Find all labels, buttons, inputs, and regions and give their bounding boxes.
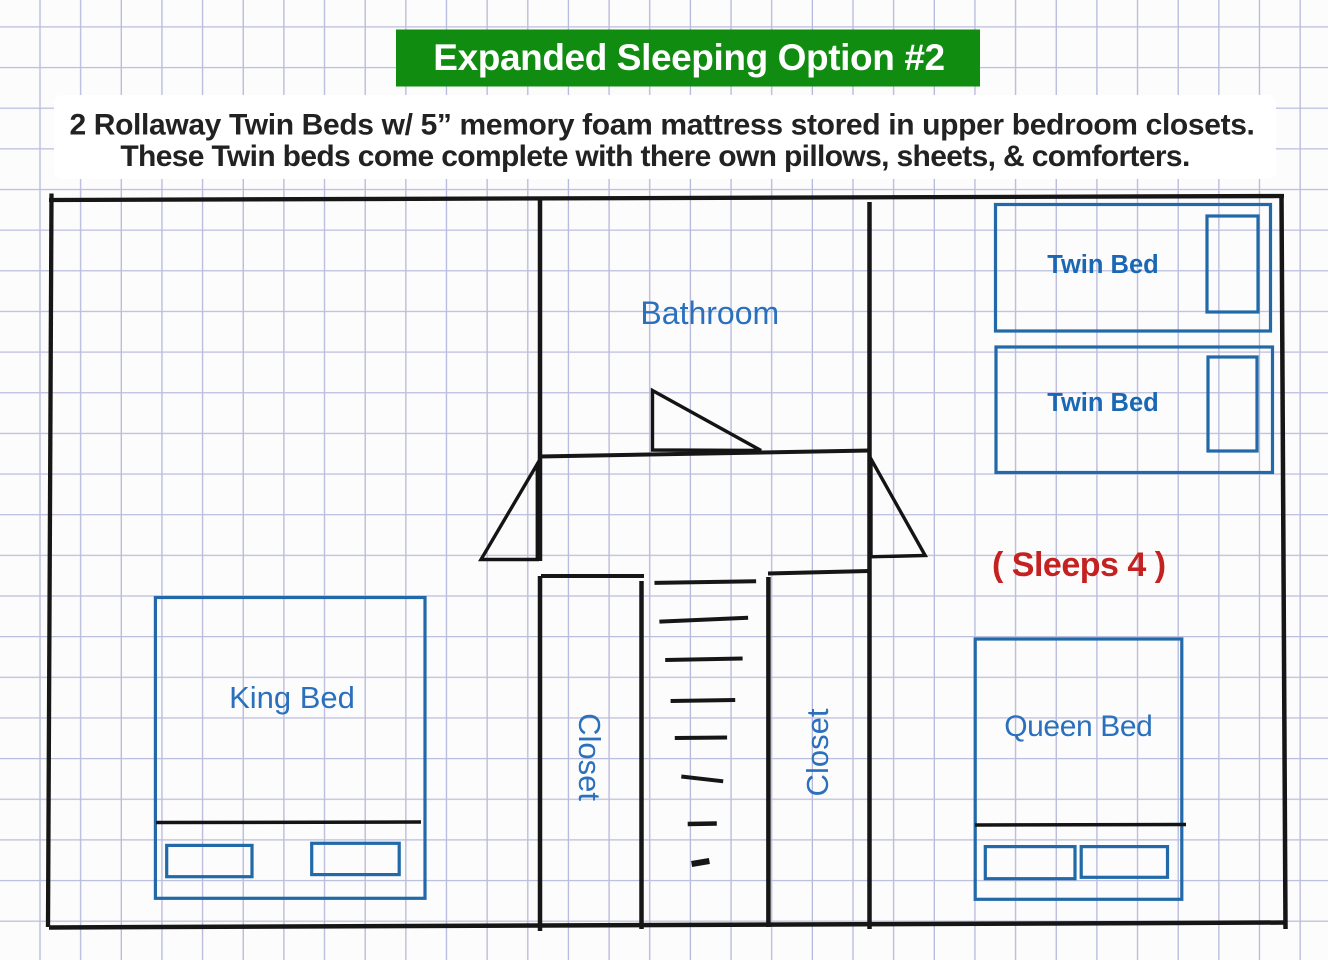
svg-text:Twin Bed: Twin Bed <box>1047 251 1158 279</box>
svg-text:2 Rollaway Twin Beds w/ 5” mem: 2 Rollaway Twin Beds w/ 5” memory foam m… <box>69 109 1254 142</box>
svg-text:King Bed: King Bed <box>229 680 355 715</box>
svg-text:Closet: Closet <box>572 713 607 801</box>
svg-text:Closet: Closet <box>800 708 835 796</box>
svg-text:Twin Bed: Twin Bed <box>1047 389 1158 417</box>
svg-text:These Twin beds come complete: These Twin beds come complete with there… <box>120 140 1189 173</box>
svg-text:Queen Bed: Queen Bed <box>1004 710 1152 743</box>
svg-text:( Sleeps 4 ): ( Sleeps 4 ) <box>992 546 1166 584</box>
svg-text:Bathroom: Bathroom <box>640 295 779 331</box>
svg-text:Expanded Sleeping Option #2: Expanded Sleeping Option #2 <box>433 37 944 78</box>
